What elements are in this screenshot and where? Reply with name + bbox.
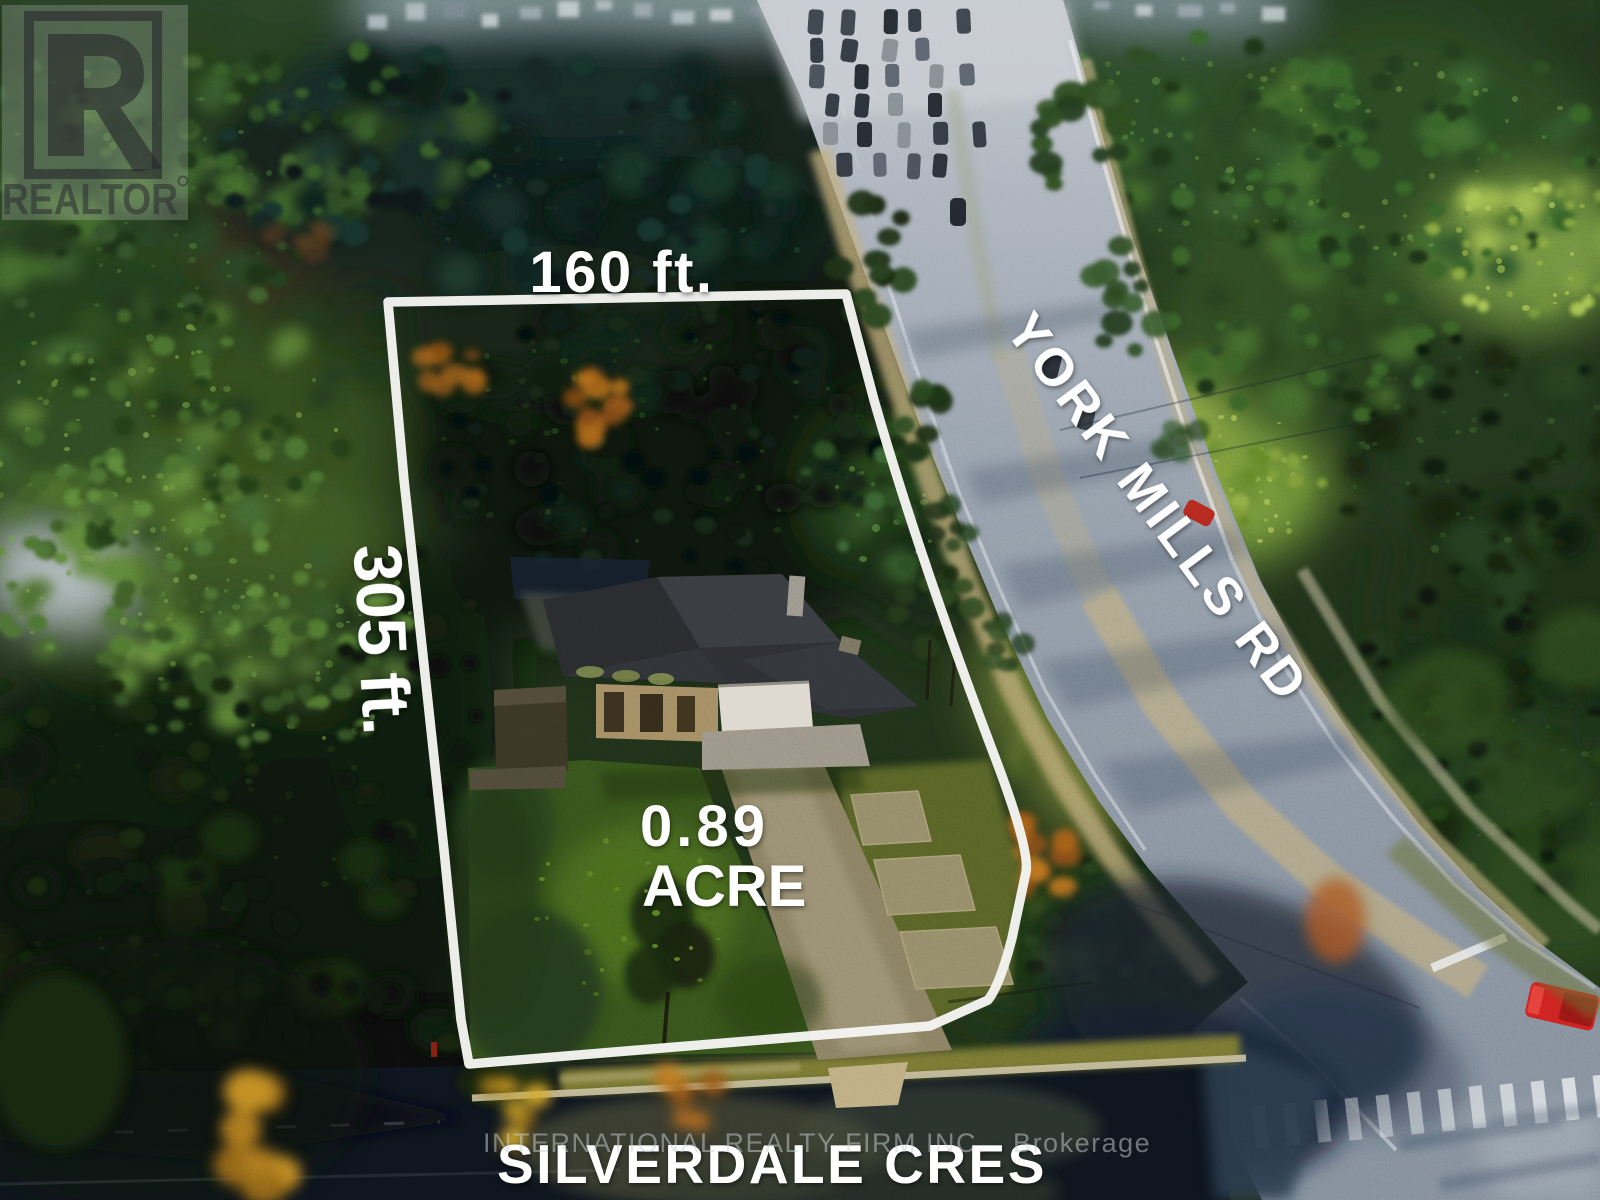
svg-text:160 ft.: 160 ft. xyxy=(529,240,714,305)
svg-text:REALTOR: REALTOR xyxy=(2,175,178,224)
svg-text:INTERNATIONAL REALTY FIRM INC.: INTERNATIONAL REALTY FIRM INC. Brokerage xyxy=(483,1128,1151,1158)
svg-text:ACRE: ACRE xyxy=(642,854,806,919)
svg-text:0.89: 0.89 xyxy=(640,794,769,859)
svg-text:305 ft.: 305 ft. xyxy=(339,542,425,735)
